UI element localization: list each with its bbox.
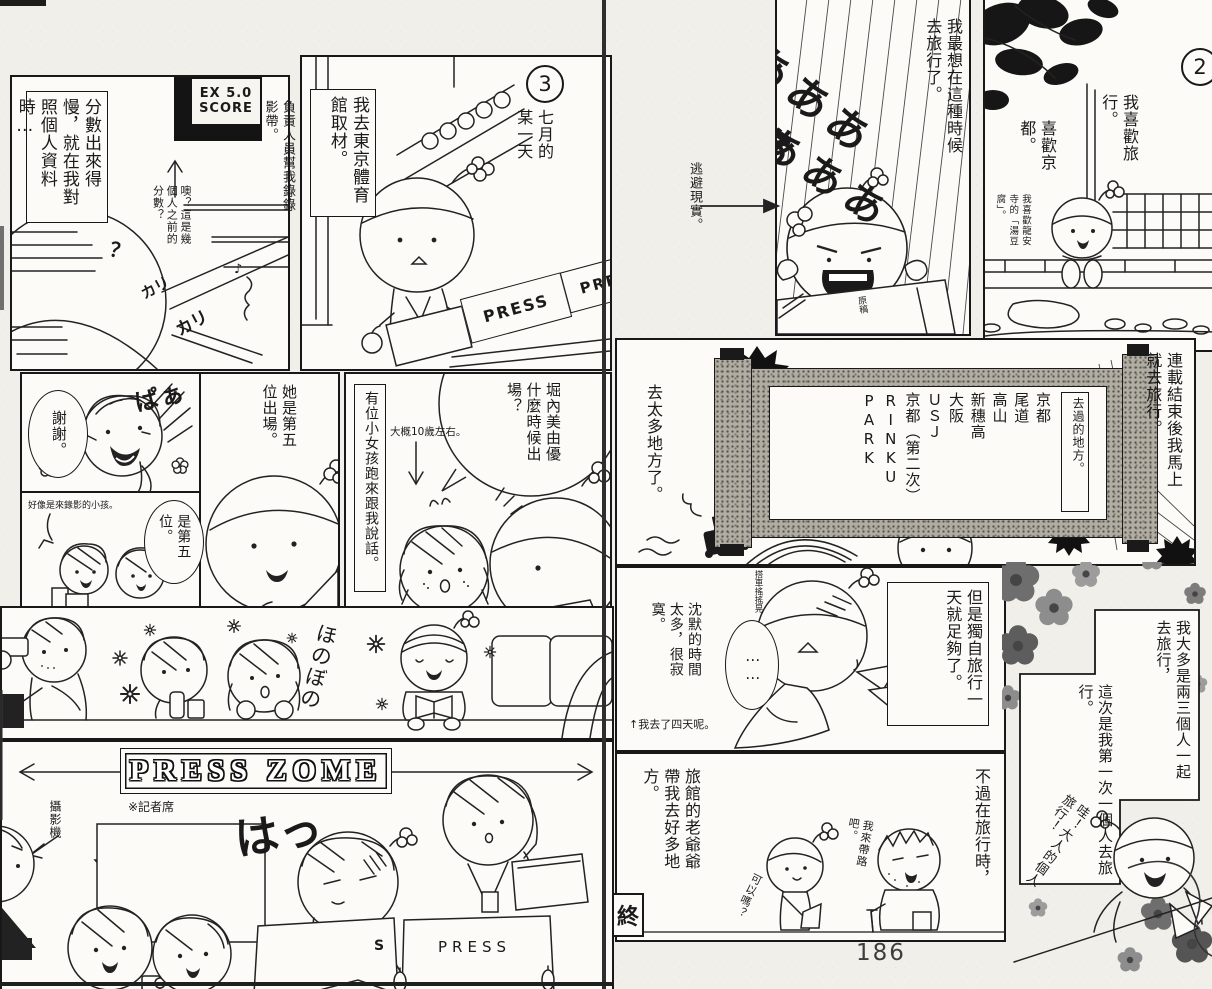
bubble-thanks: 謝謝。 — [28, 390, 88, 478]
music-note-icon: ♪ — [234, 262, 242, 277]
panel-fifth-performer: 謝謝。 ぱぁ 好像是來錄影的小孩。 是第五位。 她是第五位出場。 — [20, 372, 340, 616]
scroll-place-item: 高山 — [988, 392, 1010, 514]
note-age: 大概10歲左右。 — [390, 424, 466, 439]
scroll-place-item: 京都（第二次） — [901, 392, 923, 514]
panel-heartwarming: ほのぼの — [0, 606, 614, 740]
scoreboard-display: EX 5.0 SCORE — [192, 79, 260, 124]
roller-cap — [720, 348, 744, 360]
note-four-days: ↑我去了四天呢。 — [629, 716, 715, 732]
desk-sign-press: PRESS — [438, 938, 511, 956]
caption-grandpa: 旅館的老爺爺帶我去好多地方。 — [639, 768, 701, 872]
page-number: 186 — [856, 940, 906, 966]
scroll-place-item: 大阪 — [944, 392, 966, 514]
banner-note: ※記者席 — [128, 798, 174, 815]
bubble-fifth: 是第五位。 — [144, 500, 204, 584]
camera-label: 攝影機 — [42, 800, 62, 852]
note-whose-score: 噢？這是幾個人之前的分數？ — [146, 185, 192, 251]
scoreboard-line2: SCORE — [199, 102, 253, 117]
note-train-sway: 搭車搖搖晃 — [747, 570, 763, 634]
caption-after-serialization: 連載結束後我馬上就去旅行。 — [1125, 352, 1183, 500]
scroll-place-item: 京都 — [1031, 392, 1053, 514]
end-mark: 終 — [612, 893, 644, 937]
panel-number-3-text: 3 — [538, 72, 551, 96]
scroll-roller-left — [714, 358, 752, 548]
panel-alone: 但是獨自旅行一天就足夠了。 沈默的時間太多，很寂寞。 ↑我去了四天呢。 …… 搭… — [615, 566, 1006, 752]
sidebar-text-group-travel: 我大多是兩三個人一起去旅行， — [1102, 620, 1192, 792]
scroll-place-item: 新穗高 — [966, 392, 988, 514]
scroll-place-item: 尾道 — [1010, 392, 1032, 514]
text-too-silent: 沈默的時間太多，很寂寞。 — [643, 602, 703, 678]
bubble-horiuchi-text: 堀內美由優什麼時候出場？ — [496, 382, 562, 466]
caption-july-day: 七月的某一天 — [510, 109, 554, 171]
scroll-title: 去過的地方。 — [1061, 392, 1089, 512]
note-ryoanji: 我喜歡龍安寺的「湯豆腐」。 — [991, 194, 1031, 254]
caption-too-many-places: 去太多地方了。 — [633, 384, 663, 516]
panel-gymnasium: 3 七月的某一天 我去東京體育館取材。 PRESS PRE — [300, 55, 612, 371]
panel-likes-travel: 2 我喜歡旅行。 喜歡京都。 我喜歡龍安寺的「湯豆腐」。 — [983, 0, 1212, 352]
sidebar-author-note: 我大多是兩三個人一起去旅行， 這次是我第一次一個人去旅行。 哇！大人的個人旅行！ — [1002, 562, 1212, 989]
press-zone-banner: PRESS ZOME — [130, 754, 383, 788]
sfx-ha: はっ — [230, 792, 326, 868]
scoreboard-line1: EX 5.0 — [200, 87, 252, 102]
bubble-fifth-text: 是第五位。 — [156, 514, 192, 570]
panel-number-3: 3 — [526, 65, 564, 103]
note-recording-kids: 好像是來錄影的小孩。 — [28, 498, 118, 511]
scroll-place-item: ＵＳＪ — [923, 392, 945, 514]
bubble-thanks-text: 謝謝。 — [48, 410, 68, 458]
speech-like-kyoto: 喜歡京都。 — [1013, 120, 1057, 178]
speech-like-travel: 我喜歡旅行。 — [1093, 94, 1139, 174]
manga-spread: 分數出來得慢，就在我對照個人資料時… 分數看板 EX 5.0 SCORE 噢？這… — [0, 0, 1212, 989]
panel-innkeeper: 不過在旅行時， 旅館的老爺爺帶我去好多地方。 可以嗎？ 我來帶路吧。 — [615, 752, 1006, 942]
panel-press-zone: PRESS ZOME ※記者席 攝影機 はっ S PRESS — [0, 740, 614, 989]
roller-cap — [1127, 540, 1149, 552]
panel-scoreboard: 分數出來得慢，就在我對照個人資料時… 分數看板 EX 5.0 SCORE 噢？這… — [10, 75, 290, 371]
margin-note-escape: 逃避現實。 — [676, 162, 704, 258]
roller-cap — [720, 544, 744, 556]
panel-scroll: 去過的地方。 京都尾道高山新穗高大阪ＵＳＪ京都（第二次）RINKU PARK 連… — [615, 338, 1196, 566]
speech-she-is-fifth: 她是第五位出場。 — [254, 384, 298, 462]
caption-while-travelling: 不過在旅行時， — [961, 768, 991, 896]
speech-want-travel: 我最想在這種時候去旅行了。 — [911, 18, 963, 160]
margin-note-staff: 負責人員幫我錄錄影帶。 — [258, 100, 296, 218]
bubble-silence-dots: …… — [742, 647, 762, 683]
panel-number-2: 2 — [1181, 48, 1212, 86]
caption-one-day-enough: 但是獨自旅行一天就足夠了。 — [887, 582, 989, 726]
scroll-place-item: RINKU PARK — [857, 392, 901, 514]
scroll-places-list: 京都尾道高山新穗高大阪ＵＳＪ京都（第二次）RINKU PARK — [779, 392, 1053, 514]
caption-scores-slow: 分數出來得慢，就在我對照個人資料時… — [26, 91, 108, 223]
panel-number-2-text: 2 — [1193, 55, 1206, 79]
panel-scream: 我最想在這種時候去旅行了。 あああああ あああ 原稿 — [775, 0, 971, 336]
panel-girl-question: 有位小女孩跑來跟我說話。 堀內美由優什麼時候出場？ 大概10歲左右。 — [344, 372, 612, 616]
speech-tokyo-gym: 我去東京體育館取材。 — [310, 89, 376, 217]
caption-little-girl: 有位小女孩跑來跟我說話。 — [354, 384, 386, 592]
desk-label-manuscript: 原稿 — [854, 295, 868, 314]
desk-sign-partial: S — [374, 938, 384, 954]
